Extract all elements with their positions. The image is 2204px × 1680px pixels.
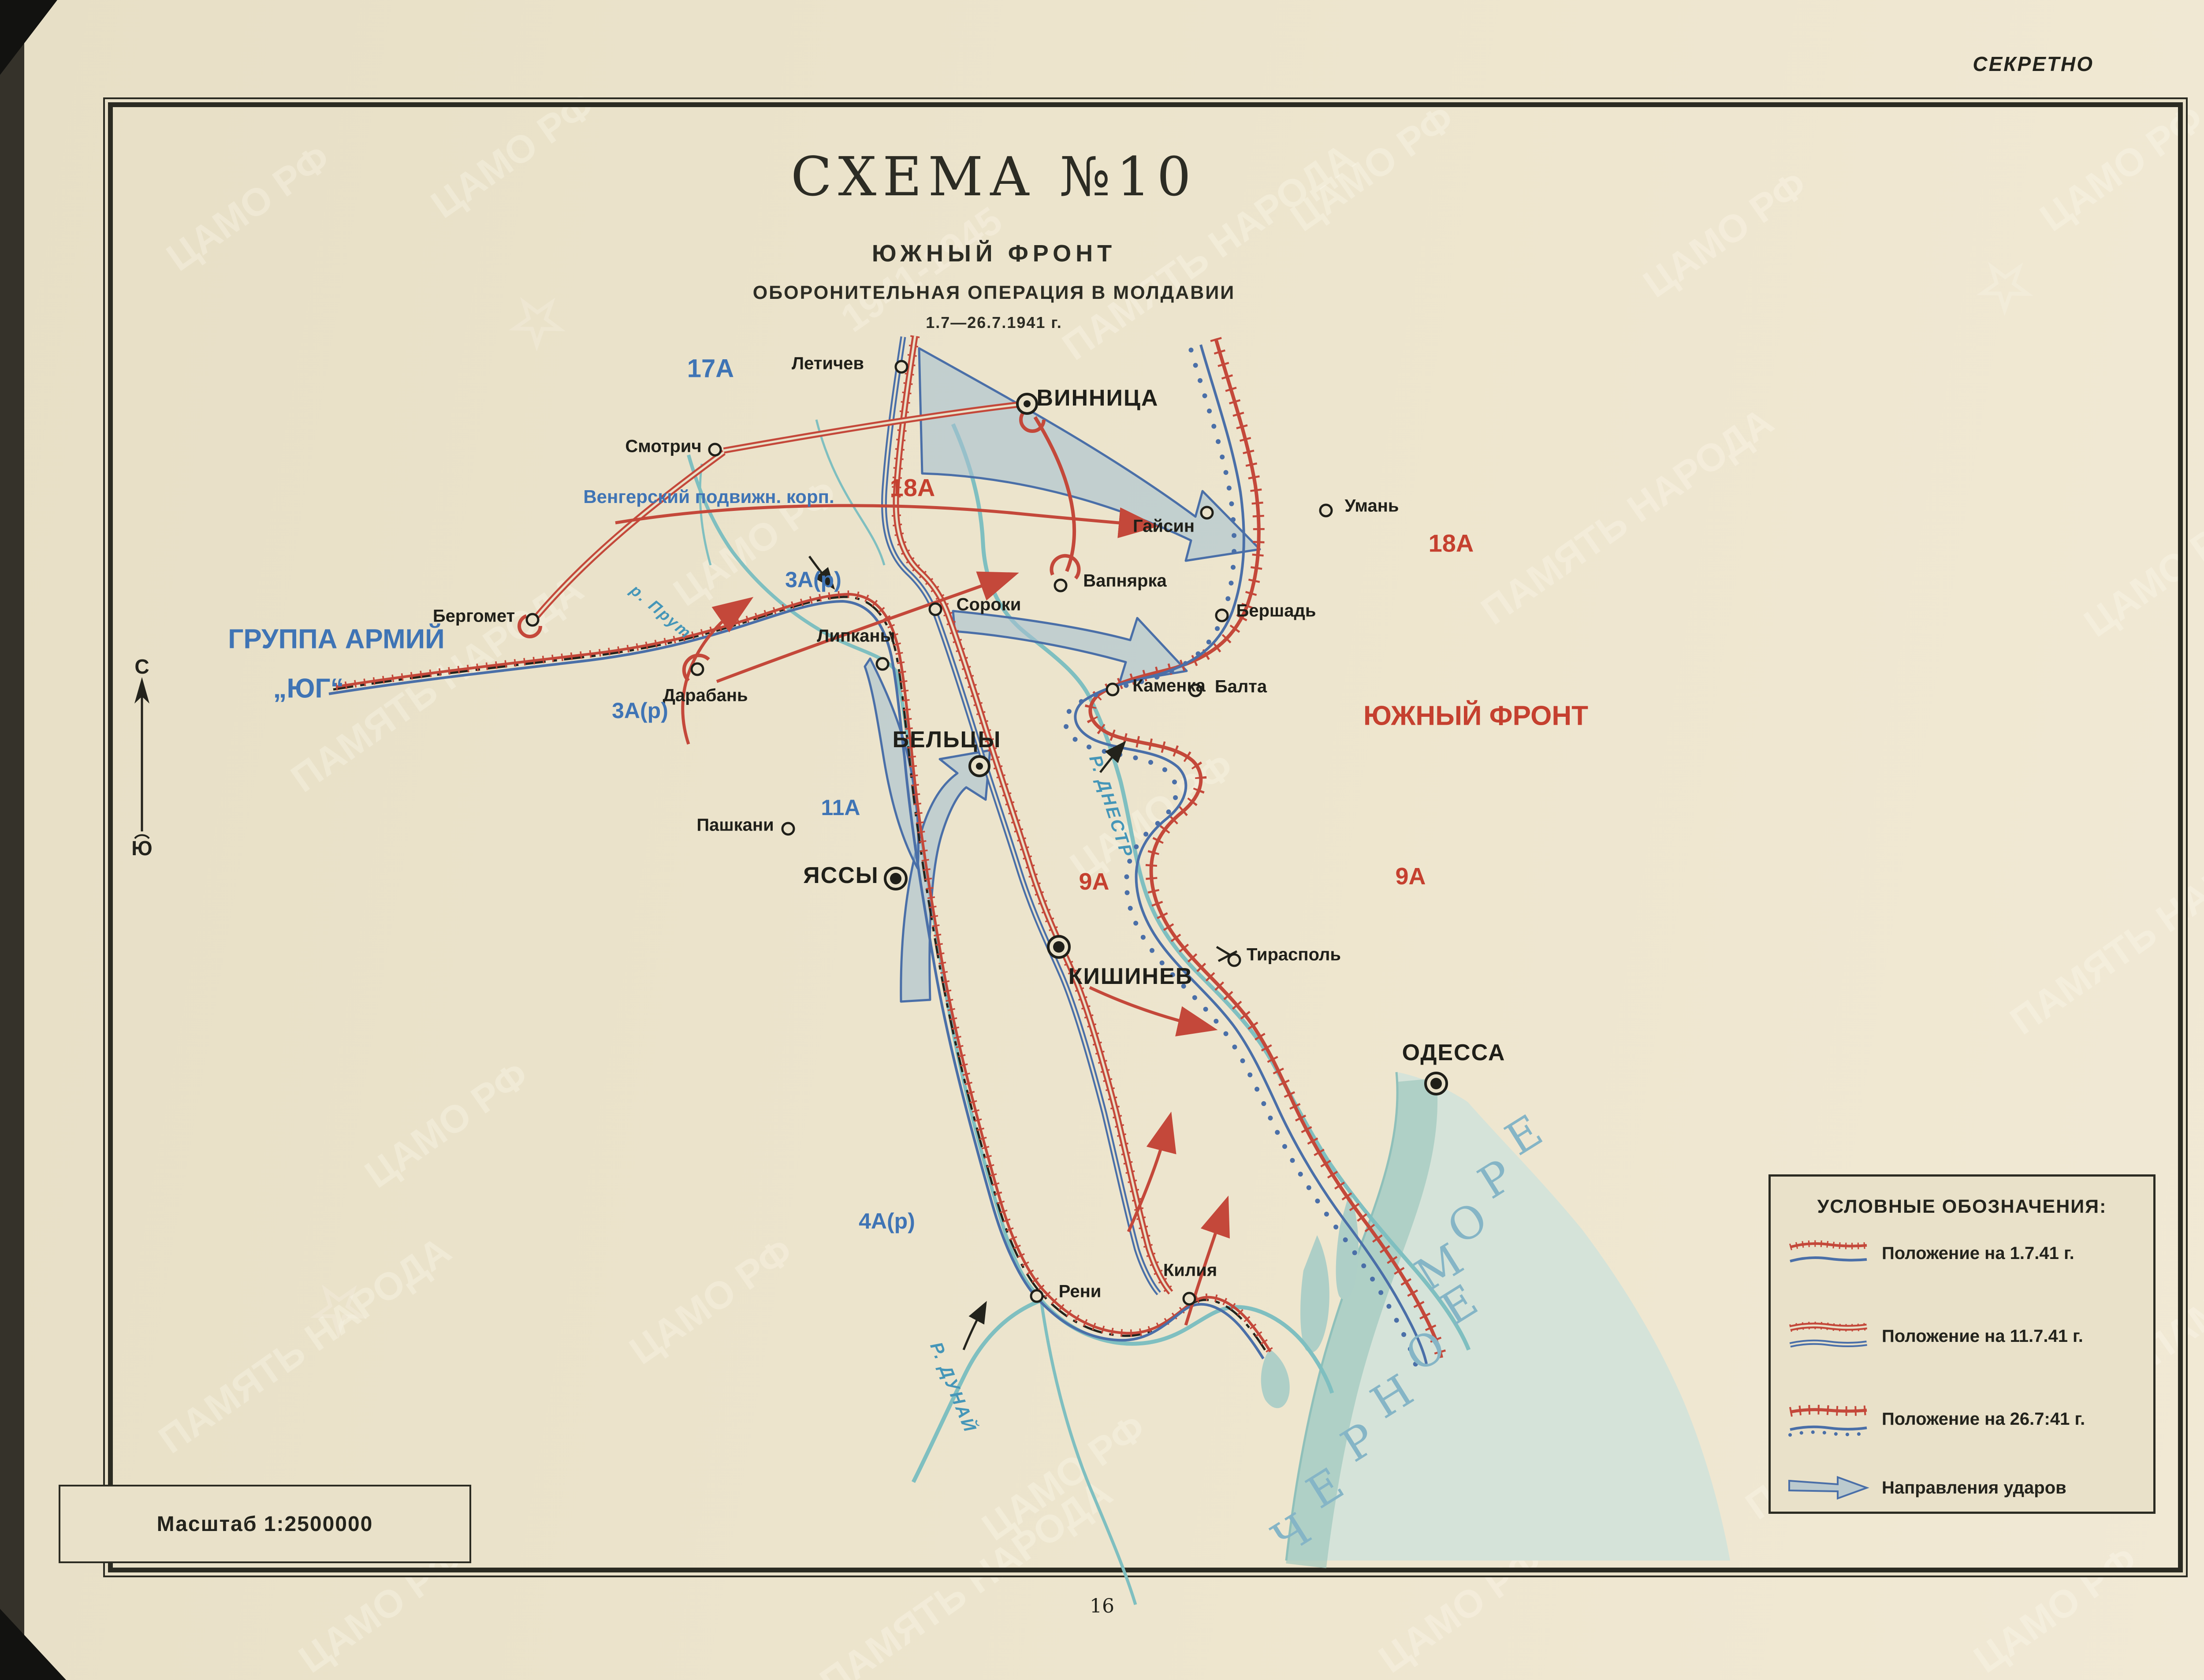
symbol-position-26-7 <box>1787 1398 1870 1440</box>
city-marker-КИШИНЕВ <box>1048 936 1069 957</box>
city-label-КИШИНЕВ: КИШИНЕВ <box>1068 963 1193 990</box>
city-marker-Тирасполь <box>1229 954 1240 966</box>
army-label-9А: 9А <box>1079 868 1109 895</box>
city-marker-Пашкани <box>782 823 794 834</box>
city-marker-Вапнярка <box>1055 580 1066 591</box>
city-marker-Гайсин <box>1201 507 1213 518</box>
city-marker-Бергомет <box>527 614 538 626</box>
city-label-Дарабань: Дарабань <box>663 686 748 706</box>
strike-arrow-vinnitsa-gaisin <box>919 348 1260 561</box>
city-label-Умань: Умань <box>1345 496 1399 516</box>
city-marker-БЕЛЬЦЫ <box>970 756 989 776</box>
page-number: 16 <box>1058 1595 1146 1617</box>
compass-north: С <box>134 655 149 678</box>
army-label-3А(р): 3А(р) <box>785 567 841 592</box>
city-label-Липканы: Липканы <box>817 626 895 646</box>
city-label-ВИННИЦА: ВИННИЦА <box>1037 385 1159 411</box>
army-label-„ЮГ“: „ЮГ“ <box>273 673 344 704</box>
liman-lake <box>1261 1349 1290 1408</box>
city-marker-ВИННИЦА <box>1017 394 1037 413</box>
city-label-БЕЛЬЦЫ: БЕЛЬЦЫ <box>893 726 1001 753</box>
city-label-Килия: Килия <box>1163 1261 1217 1281</box>
symbol-position-1-7 <box>1787 1232 1870 1274</box>
legend-box: УСЛОВНЫЕ ОБОЗНАЧЕНИЯ: Положение на 1.7.4… <box>1768 1174 2156 1514</box>
city-marker-Каменка <box>1107 684 1118 695</box>
city-marker-ЯССЫ <box>885 868 906 889</box>
legend-item-position-11-7: Положение на 11.7.41 г. <box>1787 1315 2083 1357</box>
city-label-Летичев: Летичев <box>792 354 864 374</box>
city-label-Рени: Рени <box>1059 1282 1102 1302</box>
city-marker-Умань <box>1320 505 1332 516</box>
city-label-Вапнярка: Вапнярка <box>1083 571 1167 591</box>
city-label-Бергомет: Бергомет <box>433 607 515 626</box>
city-marker-ОДЕССА <box>1426 1073 1447 1094</box>
city-label-Балта: Балта <box>1215 677 1267 697</box>
city-label-Тирасполь: Тирасполь <box>1247 945 1341 965</box>
city-label-ЯССЫ: ЯССЫ <box>803 862 879 889</box>
city-label-Каменка: Каменка <box>1132 676 1205 696</box>
army-label-18А: 18А <box>1429 529 1474 558</box>
scanned-military-map: ЦАМО РФЦАМО РФПАМЯТЬ НАРОДАЦАМО РФЦАМО Р… <box>0 0 2204 1680</box>
scale-label: Масштаб 1:2500000 <box>157 1512 373 1536</box>
army-label-17А: 17А <box>687 354 734 384</box>
army-label-4А(р): 4А(р) <box>859 1208 915 1234</box>
legend-label: Направления ударов <box>1882 1478 2066 1498</box>
city-marker-Летичев <box>896 361 907 373</box>
legend-item-strikes: Направления ударов <box>1787 1467 2066 1509</box>
city-label-Пашкани: Пашкани <box>696 816 774 835</box>
army-label-9А: 9А <box>1395 863 1426 890</box>
legend-label: Положение на 26.7:41 г. <box>1882 1409 2085 1429</box>
city-marker-Дарабань <box>692 663 703 675</box>
city-marker-Липканы <box>877 658 888 670</box>
city-label-ОДЕССА: ОДЕССА <box>1402 1039 1506 1066</box>
scale-box: Масштаб 1:2500000 <box>59 1485 471 1563</box>
legend-label: Положение на 1.7.41 г. <box>1882 1244 2074 1263</box>
city-label-Смотрич: Смотрич <box>625 437 701 457</box>
legend-title: УСЛОВНЫЕ ОБОЗНАЧЕНИЯ: <box>1771 1196 2153 1218</box>
city-label-Сороки: Сороки <box>957 595 1021 615</box>
city-marker-Бершадь <box>1216 610 1228 621</box>
army-label-3А(р): 3А(р) <box>612 698 668 723</box>
city-label-Бершадь: Бершадь <box>1236 601 1316 621</box>
river-danube-branch <box>1041 1300 1136 1605</box>
army-label-ЮЖНЫЙ-ФРОНТ: ЮЖНЫЙ ФРОНТ <box>1363 700 1588 732</box>
city-marker-Килия <box>1184 1293 1195 1304</box>
symbol-position-11-7 <box>1787 1315 1870 1357</box>
compass-south: Ю <box>131 836 152 860</box>
army-label-Венгерский-подвижн.-корп.: Венгерский подвижн. корп. <box>583 486 834 507</box>
legend-item-position-1-7: Положение на 1.7.41 г. <box>1787 1232 2074 1274</box>
army-label-11А: 11А <box>821 795 860 820</box>
army-label-18А: 18А <box>890 473 935 502</box>
symbol-strike-arrow <box>1787 1467 1870 1509</box>
liman-lake <box>1300 1235 1329 1352</box>
city-label-Гайсин: Гайсин <box>1133 517 1195 536</box>
legend-item-position-26-7: Положение на 26.7:41 г. <box>1787 1398 2085 1440</box>
city-marker-Смотрич <box>709 444 721 455</box>
legend-label: Положение на 11.7.41 г. <box>1882 1326 2083 1346</box>
army-label-ГРУППА-АРМИЙ: ГРУППА АРМИЙ <box>228 624 444 655</box>
compass-arrow <box>134 677 149 838</box>
city-marker-Рени <box>1031 1290 1042 1302</box>
city-marker-Сороки <box>930 603 941 615</box>
